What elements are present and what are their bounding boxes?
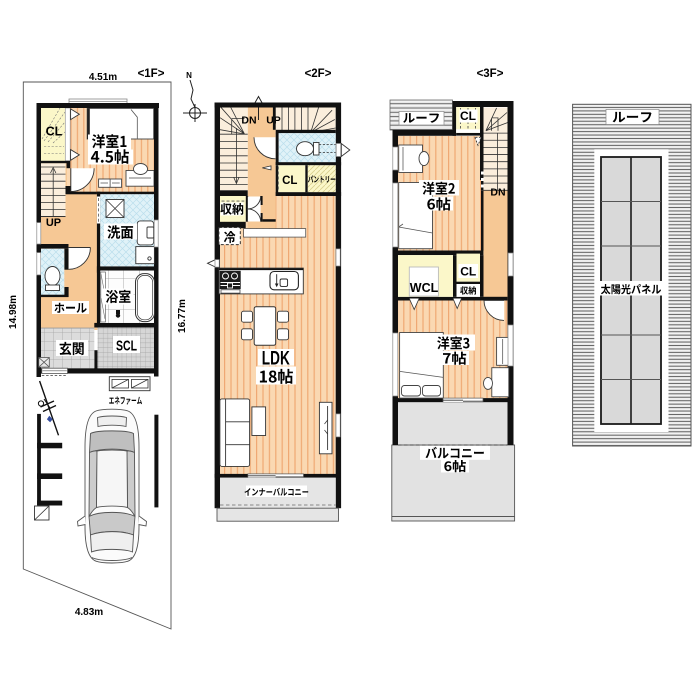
svg-text:N: N	[186, 71, 192, 80]
svg-text:16.77m: 16.77m	[177, 299, 188, 333]
svg-text:<2F>: <2F>	[305, 68, 332, 80]
svg-text:UP: UP	[46, 217, 61, 229]
svg-text:CL: CL	[460, 265, 476, 279]
svg-text:CL: CL	[460, 109, 476, 123]
svg-text:WCL: WCL	[410, 281, 439, 295]
svg-text:SCL: SCL	[116, 338, 137, 355]
svg-text:4.83m: 4.83m	[75, 607, 103, 618]
svg-text:LDK: LDK	[262, 349, 290, 370]
svg-text:DN: DN	[490, 187, 505, 199]
svg-text:<1F>: <1F>	[138, 68, 165, 80]
svg-text:14.98m: 14.98m	[8, 295, 19, 329]
svg-text:4.51m: 4.51m	[89, 72, 117, 83]
svg-text:CL: CL	[46, 125, 63, 139]
svg-text:<3F>: <3F>	[477, 68, 504, 80]
svg-text:CL: CL	[282, 175, 297, 187]
svg-text:DN: DN	[241, 115, 256, 127]
